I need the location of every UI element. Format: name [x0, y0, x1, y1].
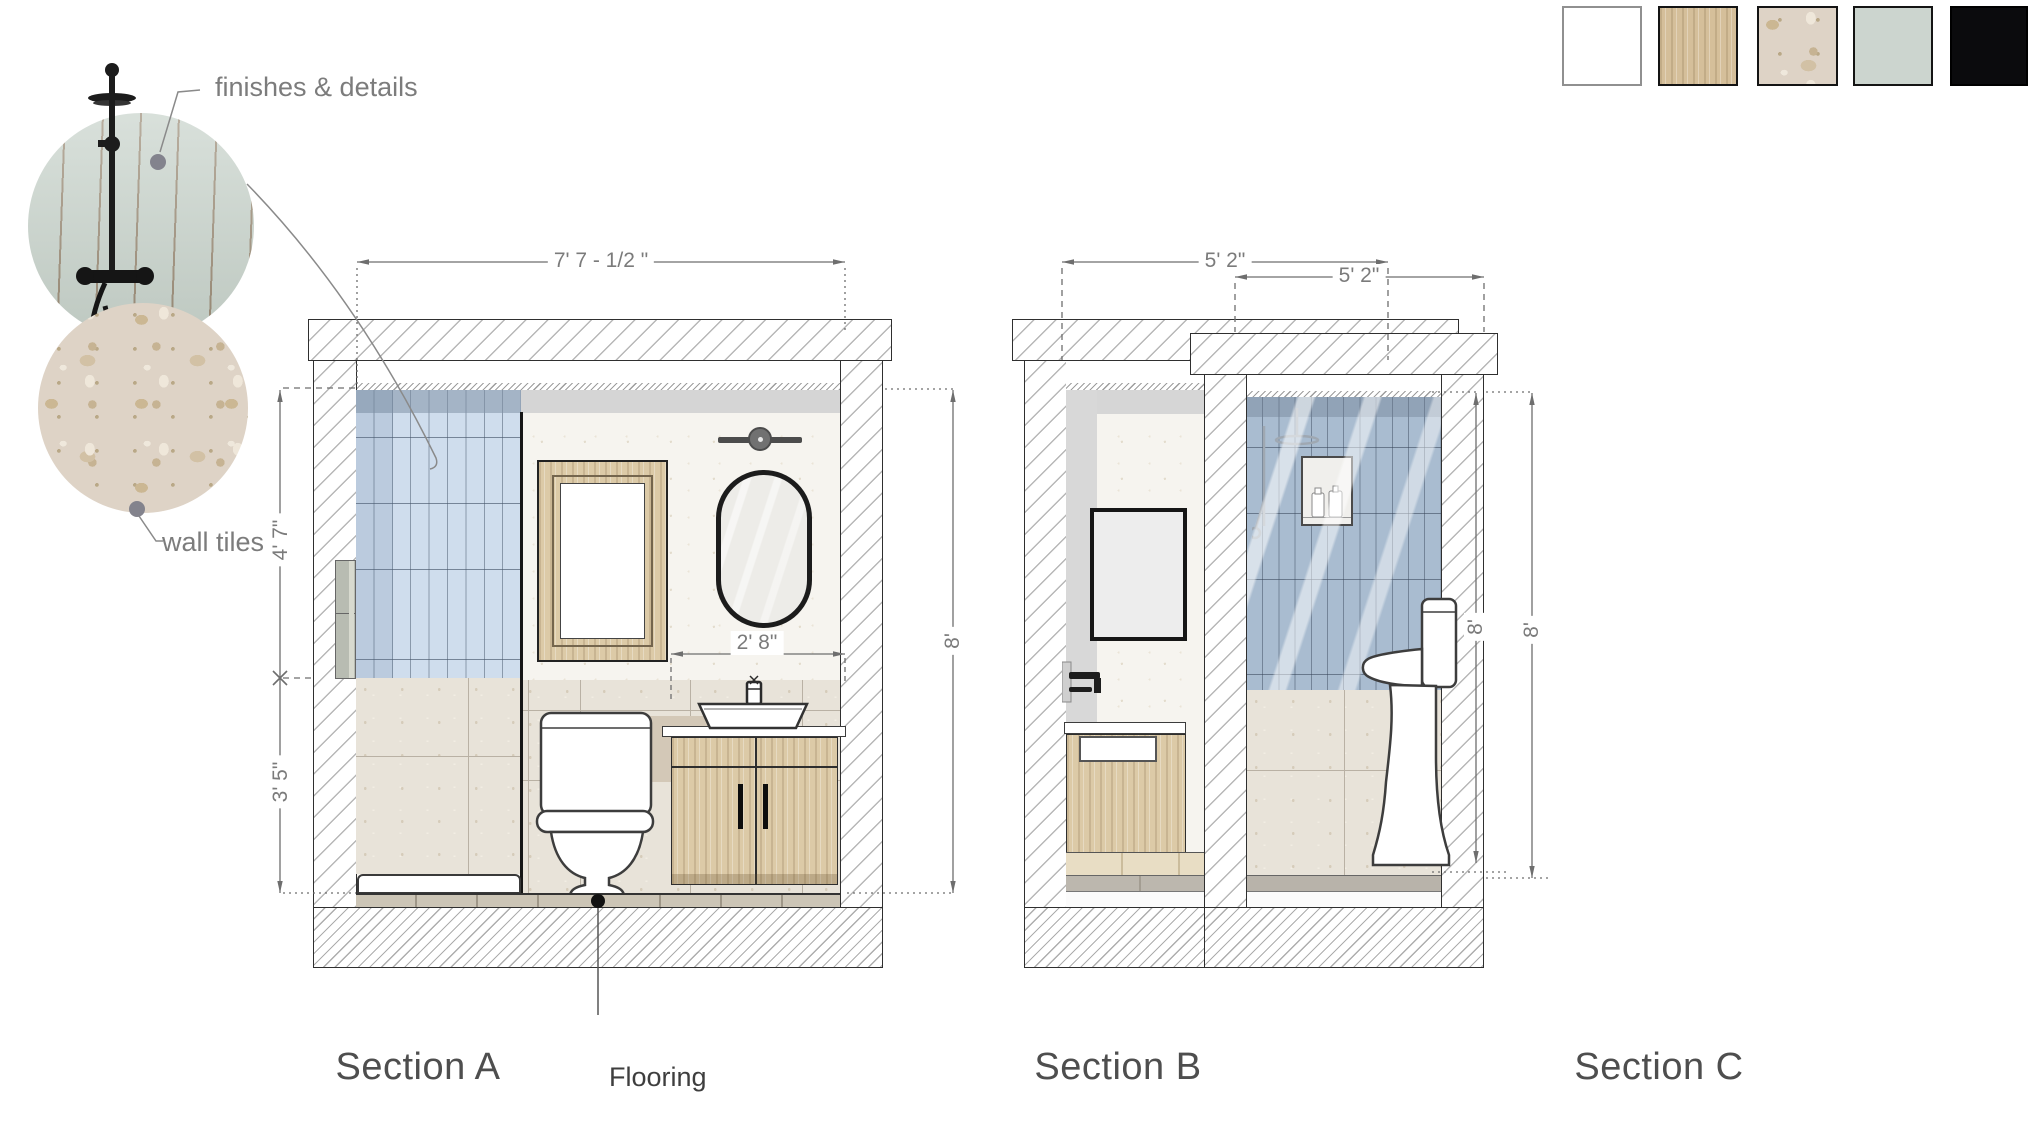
section-b-title: Section B — [1034, 1046, 1201, 1089]
dim-section-b-height: 8' — [1464, 613, 1488, 641]
dim-section-a-vanity-width: 2' 8" — [731, 631, 784, 655]
dim-section-c-width: 5' 2" — [1333, 264, 1386, 288]
section-c-title: Section C — [1574, 1046, 1743, 1089]
dim-section-b-width: 5' 2" — [1199, 249, 1252, 273]
dim-section-c-height: 8' — [1520, 616, 1544, 644]
elevation-sheet: finishes & details wall tiles — [0, 0, 2040, 1128]
dim-section-a-tile-height: 4' 7" — [269, 514, 293, 567]
flooring-note-line1: Flooring — [609, 1060, 882, 1095]
dim-section-a-lower-height: 3' 5" — [269, 756, 293, 809]
dim-section-a-width: 7' 7 - 1/2 " — [548, 249, 654, 273]
flooring-note: Flooring Material: Existing floor — [609, 990, 882, 1128]
dimension-lines — [0, 0, 2040, 1128]
dim-section-a-height: 8' — [941, 627, 965, 655]
section-a-title: Section A — [335, 1046, 500, 1089]
